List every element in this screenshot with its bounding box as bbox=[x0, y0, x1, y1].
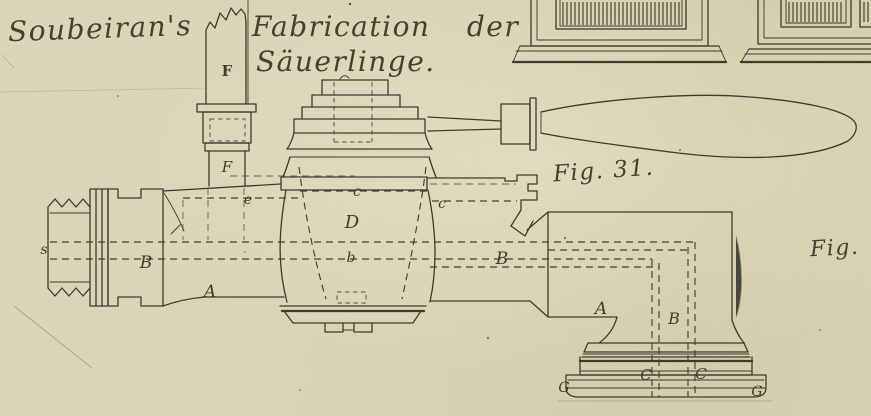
handle-collar bbox=[530, 98, 536, 150]
pipe-f-torn-top bbox=[206, 8, 246, 104]
hatching bbox=[789, 2, 841, 22]
plate-title-subject-line2: Säuerlinge. bbox=[256, 45, 436, 78]
nut-block bbox=[108, 189, 163, 306]
handle-outline bbox=[541, 95, 856, 157]
part-label-B-12: B bbox=[667, 309, 680, 328]
engraved-plate: FFsBAecDcbBABCCGG Soubeiran's Fabricatio… bbox=[0, 0, 871, 416]
part-label-G-15: G bbox=[558, 380, 569, 396]
part-label-b-9: b bbox=[347, 250, 356, 266]
part-label-F-0: F bbox=[222, 62, 233, 80]
plate-title-subject-line1: Fabrication der bbox=[252, 10, 519, 43]
handle-assembly bbox=[428, 95, 856, 157]
part-label-A-11: A bbox=[593, 299, 607, 319]
handle-rod bbox=[428, 117, 501, 131]
part-label-F-1: F bbox=[221, 158, 233, 176]
hatching bbox=[864, 2, 868, 22]
pipe-f-flange bbox=[197, 104, 256, 112]
side-lug bbox=[505, 175, 537, 236]
dashed-channels bbox=[50, 176, 695, 397]
part-labels-layer: FFsBAecDcbBABCCGG bbox=[40, 62, 762, 400]
part-label-G-16: G bbox=[751, 384, 762, 400]
main-bore-bottom bbox=[50, 259, 652, 397]
part-label-c-8: c bbox=[438, 196, 446, 212]
plate-title-artist: Soubeiran's bbox=[7, 9, 192, 48]
window-figure-left bbox=[513, 0, 726, 62]
threads bbox=[48, 199, 90, 296]
plug-taper-dashed bbox=[299, 167, 426, 299]
part-label-B-10: B bbox=[495, 249, 509, 269]
part-label-C-14: C bbox=[695, 365, 707, 383]
channel-funnel bbox=[164, 193, 184, 234]
handle-block bbox=[501, 104, 530, 144]
bottom-tabs bbox=[325, 323, 372, 332]
pedestal-base bbox=[558, 343, 772, 401]
outlet-block bbox=[548, 212, 732, 320]
body-top-edge bbox=[163, 184, 281, 191]
flange bbox=[90, 189, 108, 306]
part-label-D-7: D bbox=[344, 212, 360, 233]
hatching bbox=[563, 2, 679, 25]
part-label-A-4: A bbox=[202, 282, 216, 302]
part-label-C-13: C bbox=[640, 366, 652, 384]
barrel-sides bbox=[280, 190, 435, 302]
body-bottom-edge bbox=[163, 297, 284, 306]
stepped-cap bbox=[283, 76, 436, 177]
union-lip bbox=[205, 143, 249, 151]
part-label-B-3: B bbox=[139, 253, 153, 273]
part-label-e-5: e bbox=[244, 192, 252, 208]
part-label-c-6: c bbox=[353, 184, 361, 200]
figure-partial-label: Fig. bbox=[809, 235, 860, 263]
window-figure-right bbox=[741, 0, 871, 62]
part-label-s-2: s bbox=[40, 242, 47, 258]
